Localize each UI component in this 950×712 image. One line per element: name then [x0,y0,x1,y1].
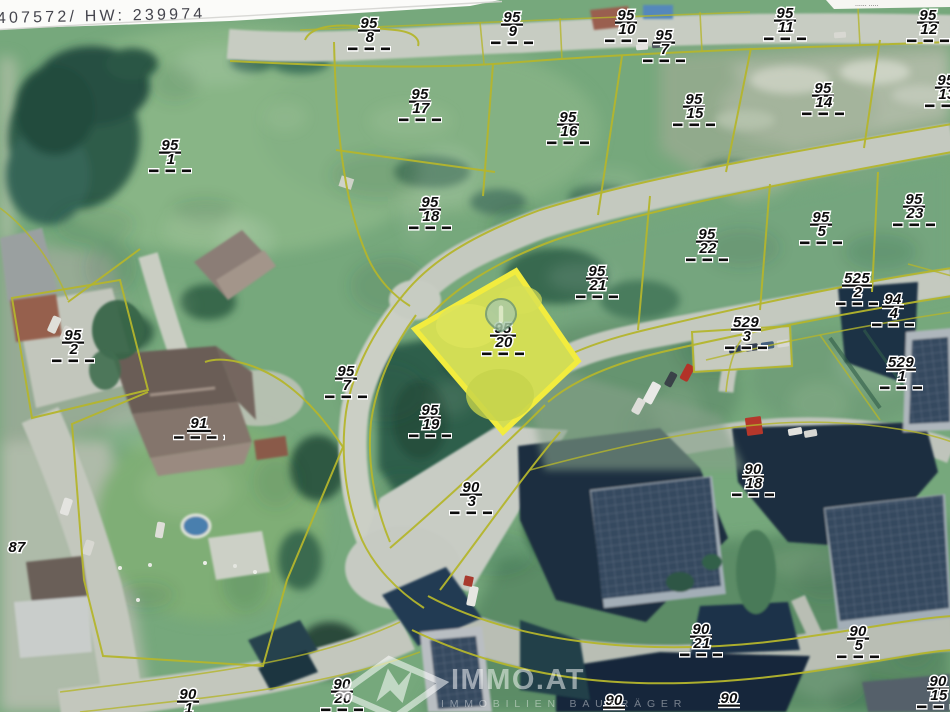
svg-text:7: 7 [343,377,352,394]
svg-text:87: 87 [8,539,26,556]
svg-text:90: 90 [720,690,738,707]
svg-text:16: 16 [560,123,578,140]
svg-text:21: 21 [588,277,606,294]
svg-text:18: 18 [422,208,440,225]
svg-text:19: 19 [422,416,440,433]
svg-text:13: 13 [938,86,950,103]
svg-text:21: 21 [692,635,710,652]
svg-text:91: 91 [190,415,207,432]
svg-text:5: 5 [855,637,864,654]
svg-text:5: 5 [818,223,827,240]
svg-text:18: 18 [745,475,763,492]
svg-text:15: 15 [686,105,704,122]
svg-text:2: 2 [853,284,863,301]
svg-text:10: 10 [618,21,636,38]
svg-text:12: 12 [920,21,938,38]
svg-text:3: 3 [743,328,752,345]
svg-text:1: 1 [898,368,907,385]
svg-text:2: 2 [69,341,79,358]
svg-text:14: 14 [815,94,833,111]
svg-text:20: 20 [494,334,513,351]
svg-text:7: 7 [661,41,670,58]
svg-text:4: 4 [889,305,899,322]
svg-text:15: 15 [930,687,948,704]
svg-text:...... .....: ...... ..... [855,1,878,8]
svg-text:3: 3 [468,493,477,510]
svg-text:1: 1 [167,151,176,168]
svg-text:17: 17 [412,100,430,117]
svg-text:IMMO.AT: IMMO.AT [451,664,585,696]
svg-text:9: 9 [509,23,518,40]
svg-text:23: 23 [905,205,924,222]
svg-text:IMMOBILIEN BAUTRÄGER: IMMOBILIEN BAUTRÄGER [441,698,687,710]
svg-text:11: 11 [778,19,794,36]
svg-text:8: 8 [366,29,375,46]
svg-text:1: 1 [185,700,194,712]
svg-text:22: 22 [698,240,717,257]
